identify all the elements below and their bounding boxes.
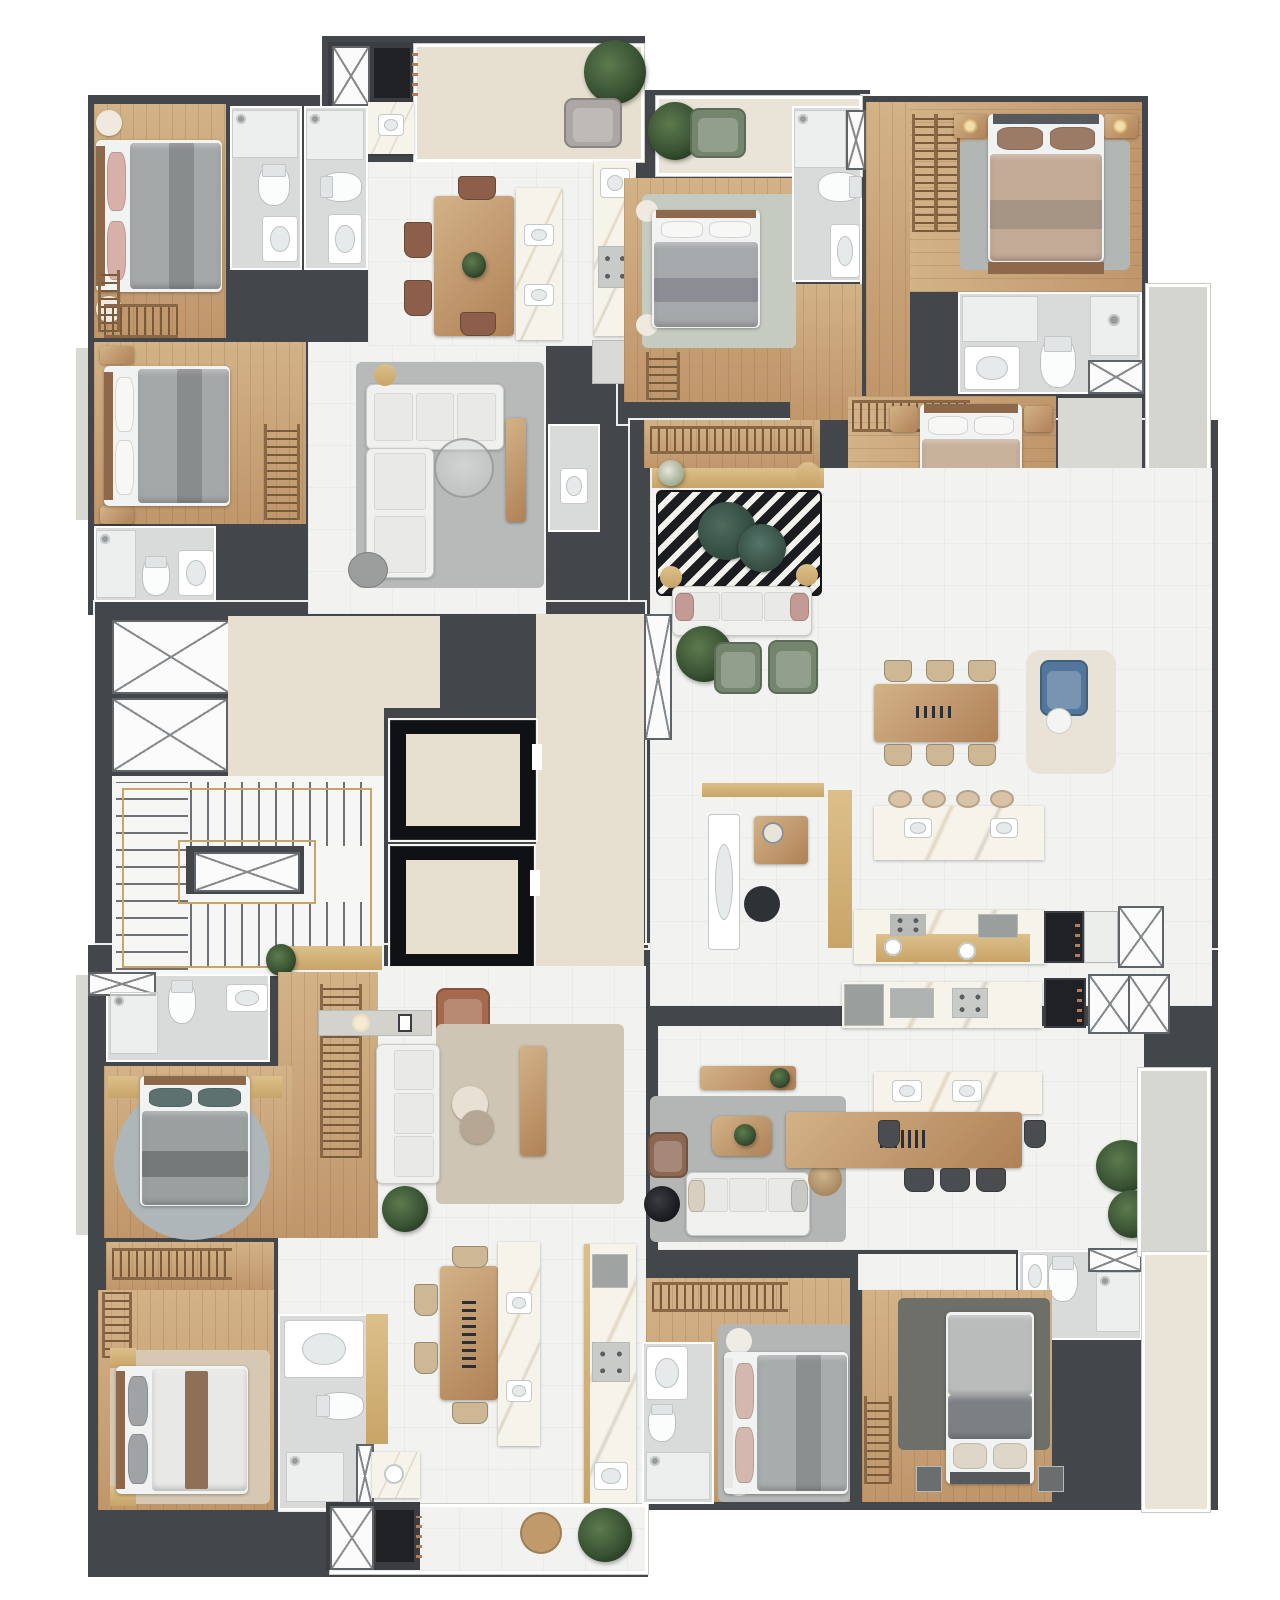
cooktop (890, 914, 926, 936)
counter-sink-gray (592, 1254, 628, 1288)
terrace-sink (378, 114, 404, 136)
console-art (398, 1014, 412, 1032)
dining-chair (452, 1246, 488, 1268)
bathroom1-shower-head (236, 114, 246, 124)
master-nightstand-bottom (100, 506, 134, 524)
dining-chair-end-left (878, 1120, 900, 1148)
facade-ledge-left-1 (76, 348, 88, 520)
suite1-bath-toilet (648, 1404, 676, 1442)
round-sink-1 (884, 938, 902, 956)
balcony-armchair (690, 108, 746, 158)
suite1-bath-head (650, 1456, 660, 1466)
dining-chair (968, 660, 996, 682)
counter-cabinet (844, 984, 884, 1026)
shower-head (798, 114, 808, 124)
bathroom1-head (1100, 1276, 1110, 1286)
appliance-tower (1044, 978, 1086, 1028)
living-sofa (376, 1044, 440, 1184)
coffee-table-taupe (460, 1110, 494, 1144)
console-plant (770, 1068, 790, 1088)
island-sink-1 (506, 1292, 532, 1314)
suite2-nightstand-left (916, 1466, 942, 1492)
cooktop (592, 1342, 630, 1382)
dining-chair (458, 176, 496, 200)
master-bed (104, 366, 230, 506)
corner-sink (384, 1464, 404, 1484)
dining-chair (976, 1168, 1006, 1192)
reading-pouf (1046, 708, 1072, 734)
bedroom2-bed (116, 1366, 248, 1494)
living-sofa-top (366, 384, 504, 450)
island-sink-2 (506, 1380, 532, 1402)
suite1-lamp-left (962, 118, 978, 134)
corridor-gold-cabinet (828, 790, 852, 948)
service-shaft-2 (112, 698, 228, 772)
balcony-upper (1138, 1068, 1210, 1256)
kitchen-gray-cabinet (978, 914, 1018, 938)
master-bath-vanity (178, 550, 214, 596)
dining-chair-end-right (1024, 1120, 1046, 1148)
island-sink-1 (524, 224, 554, 246)
elevator-2-cab (406, 860, 518, 954)
suite1-side-table-top (726, 1328, 752, 1354)
green-armchair-1 (714, 642, 762, 694)
dining-chair (460, 312, 496, 336)
living-side-console (506, 418, 526, 522)
elevator-1-door (532, 744, 542, 770)
gold-pantry (366, 1314, 388, 1444)
island-stool (888, 790, 912, 808)
master-wardrobe-rack (264, 424, 300, 520)
console-flowers (658, 460, 684, 486)
island-sink-1 (892, 1080, 922, 1102)
entry-closet-rack (650, 426, 812, 454)
terrace-shaft (330, 1506, 374, 1570)
console-mirror (796, 462, 820, 486)
suite2-nightstand-right (1024, 406, 1052, 432)
island-sink-2 (524, 284, 554, 306)
dining-chair (940, 1168, 970, 1192)
gold-pouf-right (796, 564, 818, 586)
terrace-grill (374, 1508, 416, 1564)
service-shaft-1 (1088, 974, 1132, 1034)
master-bath-toilet (142, 556, 170, 596)
bathroom2-vanity (328, 214, 362, 264)
elevator-hall (536, 614, 644, 1004)
console-lamp (352, 1014, 370, 1032)
bathroom2-toilet (320, 172, 362, 202)
bathroom2-shower-head (310, 114, 320, 124)
dining-chair (926, 660, 954, 682)
bathroom1-vanity (226, 984, 268, 1012)
suite1-bed (988, 114, 1104, 262)
nook-wall-band (702, 783, 824, 797)
service-shaft-2 (1128, 974, 1170, 1034)
dining-chair (884, 744, 912, 766)
bathroom-toilet (818, 172, 862, 202)
green-marble-table-2 (738, 524, 786, 572)
round-sink-2 (958, 942, 976, 960)
bedroom1-nightstand-right (252, 1076, 282, 1098)
bathroom2-bathtub (284, 1320, 364, 1378)
black-side-table (644, 1186, 680, 1222)
suite2-bed (946, 1312, 1034, 1484)
suite2-nightstand-left (890, 406, 918, 432)
dining-chandelier (462, 1296, 476, 1368)
dining-candelabra (916, 706, 956, 718)
media-cabinet (520, 1046, 546, 1156)
gold-pouf-left (660, 566, 682, 588)
core-hall-left (228, 616, 384, 776)
bathroom1-linen-cabinet (1088, 1248, 1142, 1272)
bedroom1-nightstand-left (108, 1076, 138, 1098)
office-desk (708, 814, 740, 950)
island-sink-2 (952, 1080, 982, 1102)
suite1-rain-shower (1090, 296, 1138, 356)
living-gold-pouf (374, 364, 396, 386)
living-coffee-table (434, 438, 494, 498)
pantry-cabinet (1084, 911, 1118, 963)
suite1-linen-cabinet (1088, 360, 1144, 394)
bedroom-corridor (858, 1254, 1016, 1290)
terrace-service-shaft (332, 46, 370, 106)
island-stool (922, 790, 946, 808)
powder-room-basin (560, 468, 588, 504)
bathroom1-toilet (1048, 1256, 1078, 1302)
white-sofa (686, 1172, 810, 1236)
bathroom2-toilet (316, 1392, 364, 1420)
suite2-closet-rack (864, 1396, 892, 1484)
counter-gold-edge (584, 1244, 590, 1506)
suite1-toilet (1040, 336, 1076, 388)
cooktop (952, 988, 988, 1018)
living-service-shaft (644, 614, 672, 740)
suite1-bed (724, 1352, 848, 1494)
terrace-lounge-chair (564, 98, 622, 148)
green-armchair-2 (768, 640, 818, 694)
elevator-1-cab (406, 734, 520, 826)
stair-handrail-inner (178, 840, 316, 904)
closet-hall-rack (112, 1248, 232, 1280)
bathroom1-toilet (168, 980, 196, 1024)
dining-chair (968, 744, 996, 766)
double-sink (890, 988, 934, 1018)
living-console (318, 1010, 432, 1036)
kitchen-linen-cabinet (1118, 906, 1164, 968)
dining-chair (452, 1402, 488, 1424)
suite1-lamp-right (1112, 118, 1128, 134)
suite1-shower-tray (962, 296, 1038, 342)
bathroom1-vanity (262, 216, 298, 262)
suite1-rain-head (1108, 314, 1120, 326)
office-chair (744, 886, 780, 922)
balcony-lower (1142, 1252, 1210, 1512)
bathroom-vanity (830, 224, 860, 278)
bathroom1-toilet (258, 164, 290, 206)
island-stool (990, 790, 1014, 808)
bedroom1-closet-rack (104, 304, 178, 338)
office-mirror (762, 822, 784, 844)
coffee-table-plant (734, 1124, 756, 1146)
dining-chair (884, 660, 912, 682)
dining-chair (404, 280, 432, 316)
suite1-vanity (964, 346, 1020, 390)
master-bath-shower-head (100, 534, 110, 544)
bedroom2-nightstand-top (110, 1348, 136, 1368)
bedroom-bed (652, 210, 760, 328)
facade-ledge-left-2 (76, 975, 88, 1235)
kitchen-island (874, 806, 1044, 860)
dining-centerpiece (462, 252, 486, 278)
kitchen-island (498, 1242, 540, 1446)
bathroom2-head (290, 1456, 300, 1466)
suites-corridor-floor (866, 102, 910, 396)
counter-sink-white (594, 1462, 628, 1490)
island-stool (956, 790, 980, 808)
dining-chair (904, 1168, 934, 1192)
living-ottoman (348, 552, 388, 588)
bedroom1-side-table-top (96, 110, 122, 136)
dining-chair (414, 1284, 438, 1316)
blue-reading-chair (1040, 660, 1088, 716)
suite1-closet-rack (652, 1282, 788, 1312)
oven-tower (1044, 911, 1084, 963)
dining-chair (414, 1342, 438, 1374)
terrace-plant (578, 1508, 632, 1562)
master-nightstand-top (100, 346, 134, 364)
terrace-plant (584, 40, 646, 104)
dining-chair (404, 222, 432, 258)
island-sink-1 (904, 818, 932, 838)
suite1-bath-vanity (646, 1346, 688, 1400)
barbecue-grill (372, 46, 412, 100)
service-shaft (846, 110, 866, 170)
closet-rack (646, 352, 680, 400)
terrace-pouf (520, 1512, 562, 1554)
suite1-foot-bench (988, 262, 1104, 274)
bathroom1-head (114, 996, 124, 1006)
brown-armchair (648, 1132, 688, 1178)
kitchen-island (516, 188, 562, 340)
floor-plan-canvas (0, 0, 1280, 1600)
elevator-2-door (530, 870, 540, 896)
suite2-nightstand-right (1038, 1466, 1064, 1492)
bedroom1-bed (140, 1076, 250, 1206)
dining-chair (926, 744, 954, 766)
grill-skewers (412, 52, 418, 96)
island-sink-2 (990, 818, 1018, 838)
living-plant (382, 1186, 428, 1232)
service-shaft-1 (112, 620, 230, 694)
